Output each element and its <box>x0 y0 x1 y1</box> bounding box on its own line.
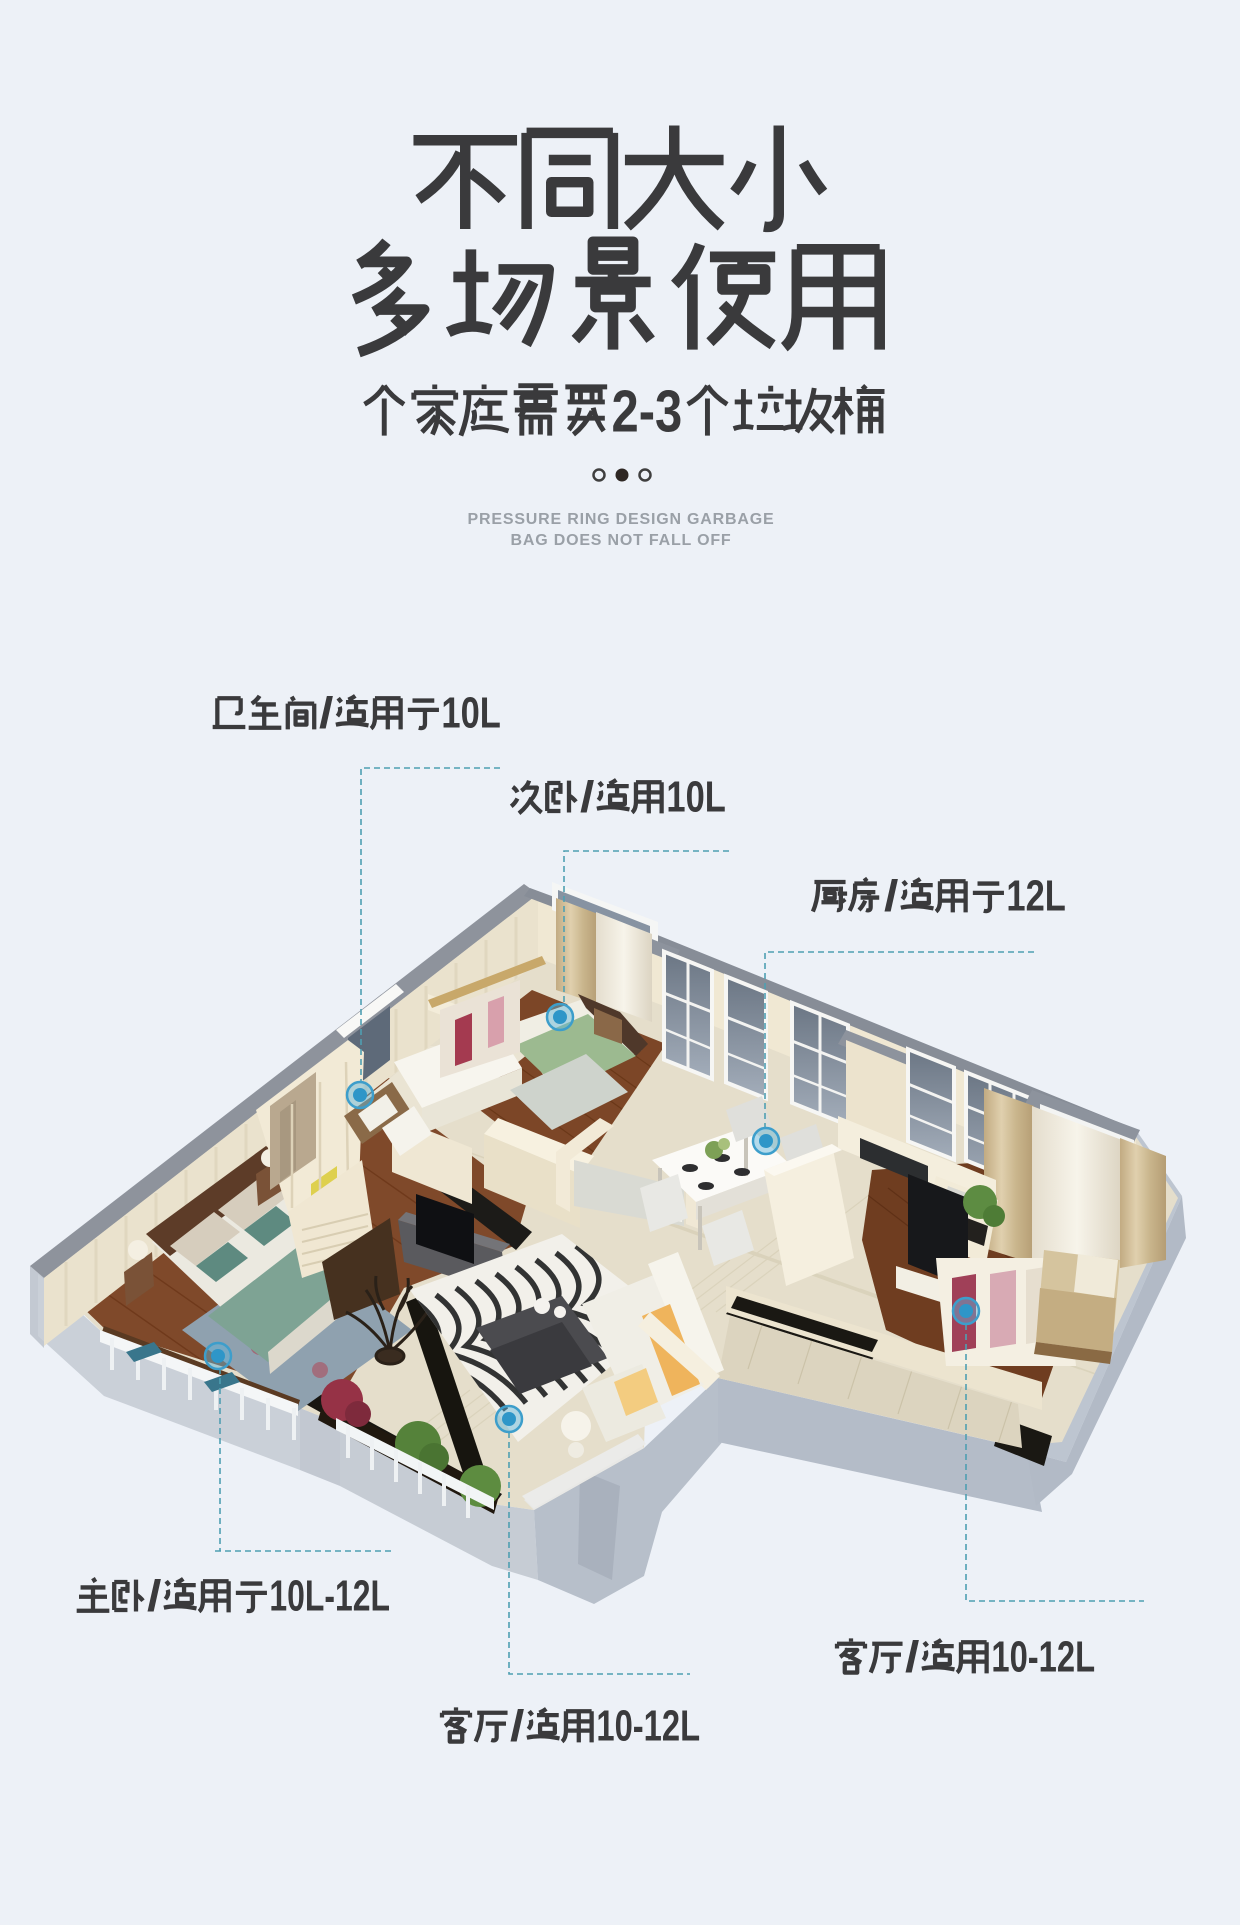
svg-text:10L-12L: 10L-12L <box>269 1572 390 1620</box>
svg-text:/: / <box>147 1572 161 1620</box>
svg-text:/: / <box>510 1702 524 1750</box>
svg-text:PRESSURE RING DESIGN GARBAGE: PRESSURE RING DESIGN GARBAGE <box>468 511 775 528</box>
svg-text:12L: 12L <box>1006 872 1065 920</box>
svg-text:2-3: 2-3 <box>612 377 683 444</box>
svg-text:/: / <box>319 689 333 737</box>
svg-text:10-12L: 10-12L <box>596 1702 700 1750</box>
svg-text:10L: 10L <box>441 689 500 737</box>
svg-text:/: / <box>905 1633 919 1681</box>
svg-text:10L: 10L <box>666 773 725 821</box>
svg-text:/: / <box>884 872 898 920</box>
svg-text:/: / <box>580 773 594 821</box>
svg-text:10-12L: 10-12L <box>991 1633 1095 1681</box>
svg-text:BAG DOES NOT FALL OFF: BAG DOES NOT FALL OFF <box>511 532 732 549</box>
